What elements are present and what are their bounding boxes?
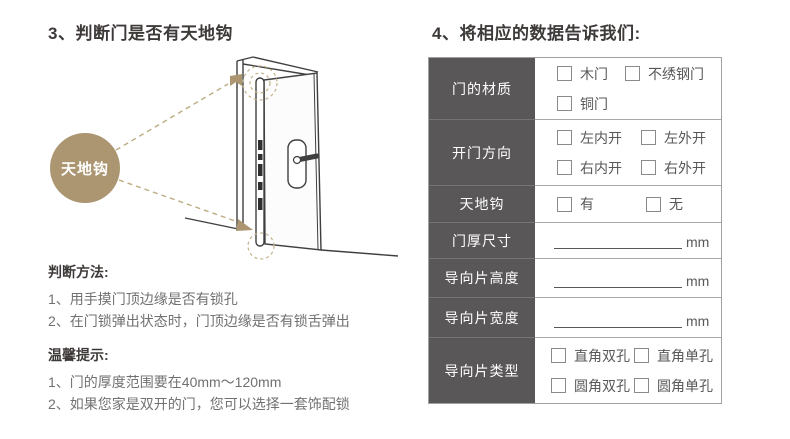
row-label-guide-width: 导向片宽度 (429, 298, 535, 338)
option-square-single-hole: 直角单孔 (634, 346, 721, 366)
hook-markers (230, 74, 253, 231)
checkbox-left-inward[interactable] (557, 130, 572, 145)
method-item-1: 1、用手摸门顶边缘是否有锁孔 (48, 288, 408, 310)
tips-item-1: 1、门的厚度范围要在40mm～120mm (48, 371, 408, 393)
method-block: 判断方法: 1、用手摸门顶边缘是否有锁孔 2、在门锁弹出状态时，门顶边缘是否有锁… (48, 262, 408, 332)
option-round-single-hole: 圆角单孔 (634, 376, 721, 396)
option-stainless-door: 不绣钢门 (625, 64, 721, 84)
option-right-outward: 右外开 (641, 158, 721, 178)
row-label-door-material: 门的材质 (429, 58, 535, 120)
data-form-table: 门的材质 木门 不绣钢门 铜门 (428, 57, 722, 404)
section3-title: 3、判断门是否有天地钩 (48, 19, 233, 44)
table-row-door-material: 门的材质 木门 不绣钢门 铜门 (429, 58, 721, 120)
page: 3、判断门是否有天地钩 (0, 0, 790, 439)
option-hook-no: 无 (646, 194, 721, 214)
checkbox-round-single-hole[interactable] (634, 378, 649, 393)
hook-badge: 天地钩 (50, 133, 120, 203)
row-label-open-direction: 开门方向 (429, 120, 535, 186)
table-row-open-direction: 开门方向 左内开 左外开 右内开 (429, 120, 721, 186)
tips-heading: 温馨提示: (48, 345, 408, 365)
row-label-hook: 天地钩 (429, 186, 535, 223)
table-row-guide-height: 导向片高度 mm (429, 259, 721, 298)
unit-label: mm (686, 274, 709, 288)
option-hook-yes: 有 (557, 194, 646, 214)
checkbox-square-double-hole[interactable] (551, 348, 566, 363)
checkbox-round-double-hole[interactable] (551, 378, 566, 393)
unit-label: mm (686, 235, 709, 249)
checkbox-square-single-hole[interactable] (634, 348, 649, 363)
fill-in-line-door-thickness[interactable] (554, 235, 682, 249)
option-copper-door: 铜门 (557, 94, 625, 114)
pointer-lines (116, 84, 238, 222)
table-row-door-thickness: 门厚尺寸 mm (429, 223, 721, 259)
option-round-double-hole: 圆角双孔 (551, 376, 634, 396)
checkbox-right-outward[interactable] (641, 160, 656, 175)
option-wood-door: 木门 (557, 64, 625, 84)
table-row-guide-width: 导向片宽度 mm (429, 298, 721, 338)
option-left-inward: 左内开 (557, 128, 641, 148)
checkbox-copper-door[interactable] (557, 96, 572, 111)
row-label-door-thickness: 门厚尺寸 (429, 223, 535, 259)
checkbox-hook-no[interactable] (646, 197, 661, 212)
checkbox-right-inward[interactable] (557, 160, 572, 175)
section4-title: 4、将相应的数据告诉我们: (432, 19, 641, 44)
option-left-outward: 左外开 (641, 128, 721, 148)
table-row-guide-type: 导向片类型 直角双孔 直角单孔 圆角双孔 (429, 338, 721, 403)
fill-in-line-guide-height[interactable] (554, 274, 682, 288)
checkbox-left-outward[interactable] (641, 130, 656, 145)
fill-in-line-guide-width[interactable] (554, 314, 682, 328)
tips-item-2: 2、如果您家是双开的门，您可以选择一套饰配锁 (48, 393, 408, 415)
row-label-guide-height: 导向片高度 (429, 259, 535, 298)
option-right-inward: 右内开 (557, 158, 641, 178)
tips-block: 温馨提示: 1、门的厚度范围要在40mm～120mm 2、如果您家是双开的门，您… (48, 345, 408, 415)
checkbox-hook-yes[interactable] (557, 197, 572, 212)
table-row-hook: 天地钩 有 无 (429, 186, 721, 223)
method-heading: 判断方法: (48, 262, 408, 282)
option-square-double-hole: 直角双孔 (551, 346, 634, 366)
checkbox-wood-door[interactable] (557, 66, 572, 81)
method-item-2: 2、在门锁弹出状态时，门顶边缘是否有锁舌弹出 (48, 310, 408, 332)
row-label-guide-type: 导向片类型 (429, 338, 535, 403)
unit-label: mm (686, 314, 709, 328)
checkbox-stainless-door[interactable] (625, 66, 640, 81)
